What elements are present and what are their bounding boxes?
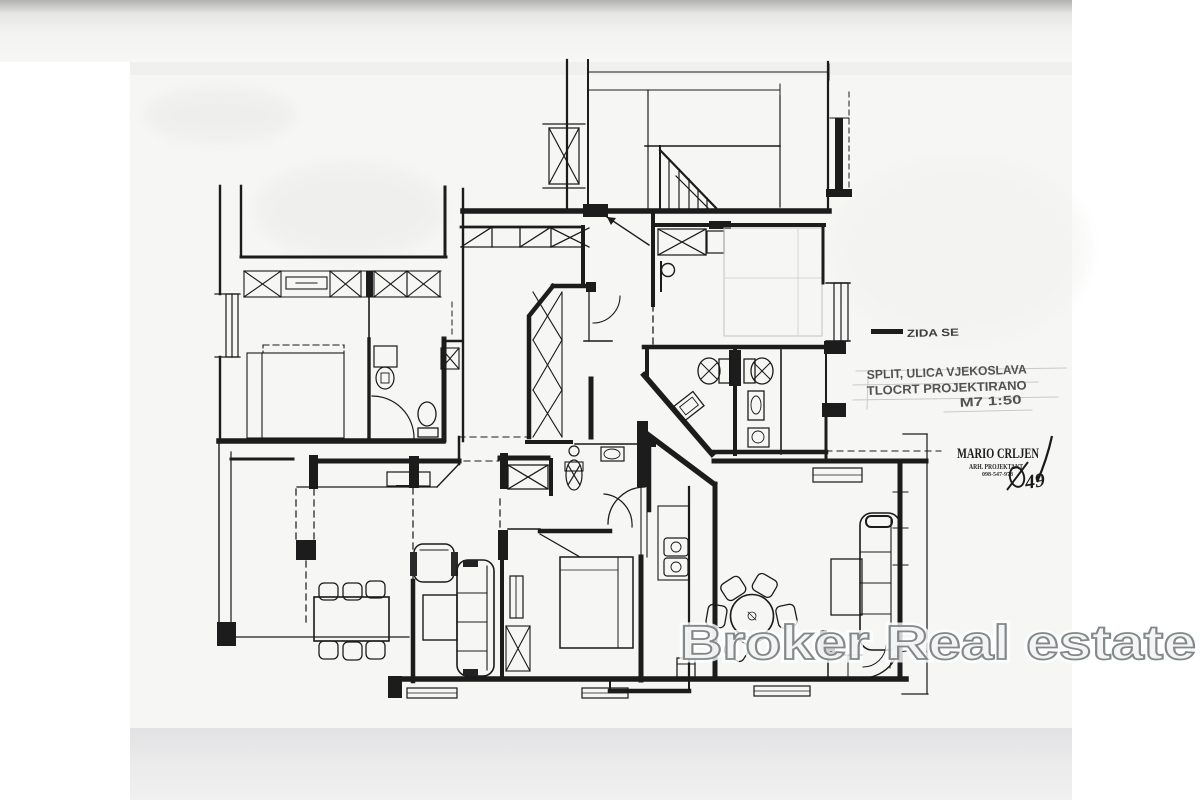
svg-text:098-547-978: 098-547-978 bbox=[982, 472, 1013, 478]
svg-text:ZIDA SE: ZIDA SE bbox=[907, 327, 959, 340]
svg-text:49: 49 bbox=[1022, 469, 1046, 494]
svg-text:Broker Real estate: Broker Real estate bbox=[680, 617, 1196, 670]
svg-text:MARIO CRLJEN: MARIO CRLJEN bbox=[957, 446, 1039, 462]
